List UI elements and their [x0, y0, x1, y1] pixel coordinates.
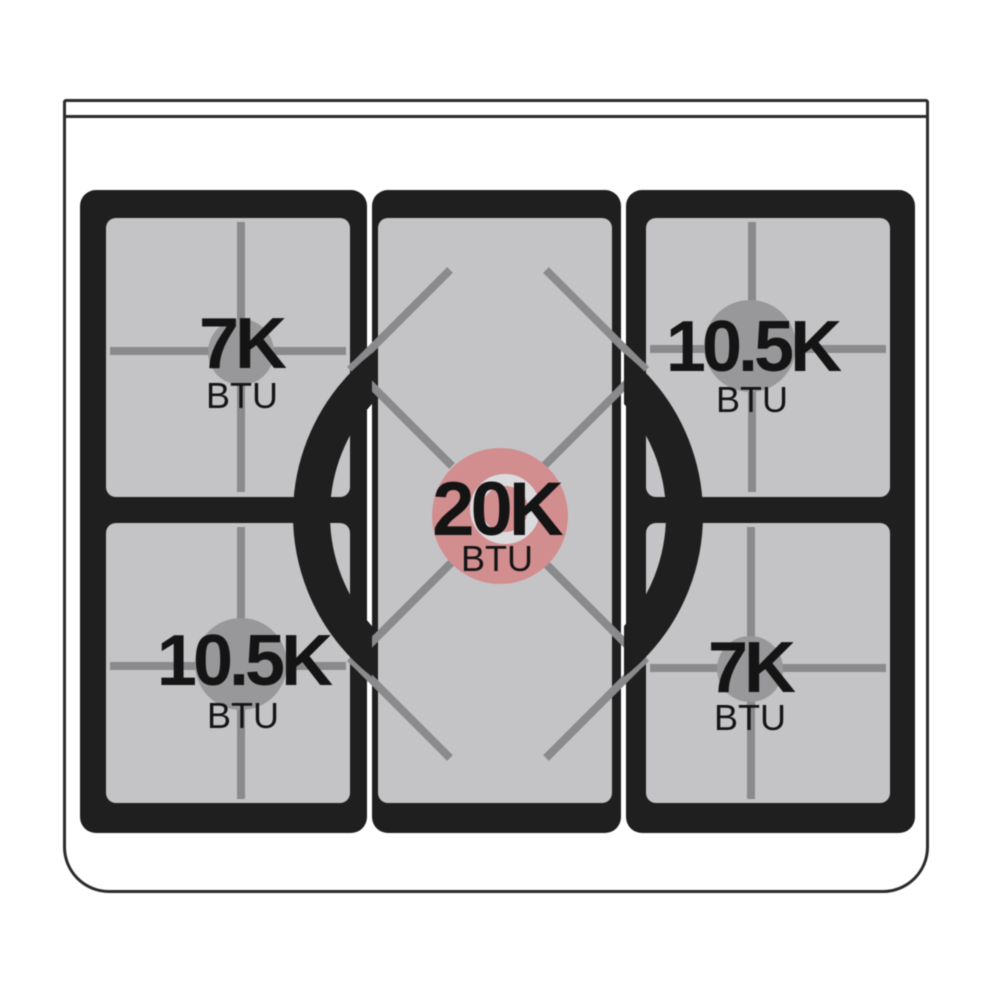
grate-diagonal-bottom-left: [350, 658, 450, 758]
burner-power-label-bottom-right: 7K: [708, 632, 792, 704]
gas-cooktop-diagram: 7K BTU 10.5K BTU 20K BTU 10.5K BTU 7K BT…: [0, 0, 1000, 1000]
burner-unit-label-top-left: BTU: [206, 378, 278, 414]
burner-power-label-bottom-left: 10.5K: [157, 625, 329, 697]
grate-diagonal-top-right: [546, 270, 646, 370]
burner-power-label-top-right: 10.5K: [666, 311, 838, 383]
grate-diagonal-bottom-right: [546, 658, 646, 758]
burner-unit-label-bottom-left: BTU: [207, 698, 279, 734]
burner-unit-label-top-right: BTU: [716, 382, 788, 418]
burner-unit-label-bottom-right: BTU: [714, 700, 786, 736]
grate-diagonal-top-left: [350, 270, 450, 370]
burner-unit-label-center: BTU: [461, 541, 533, 577]
burner-power-label-top-left: 7K: [199, 308, 283, 380]
burner-power-label-center: 20K: [432, 472, 559, 548]
